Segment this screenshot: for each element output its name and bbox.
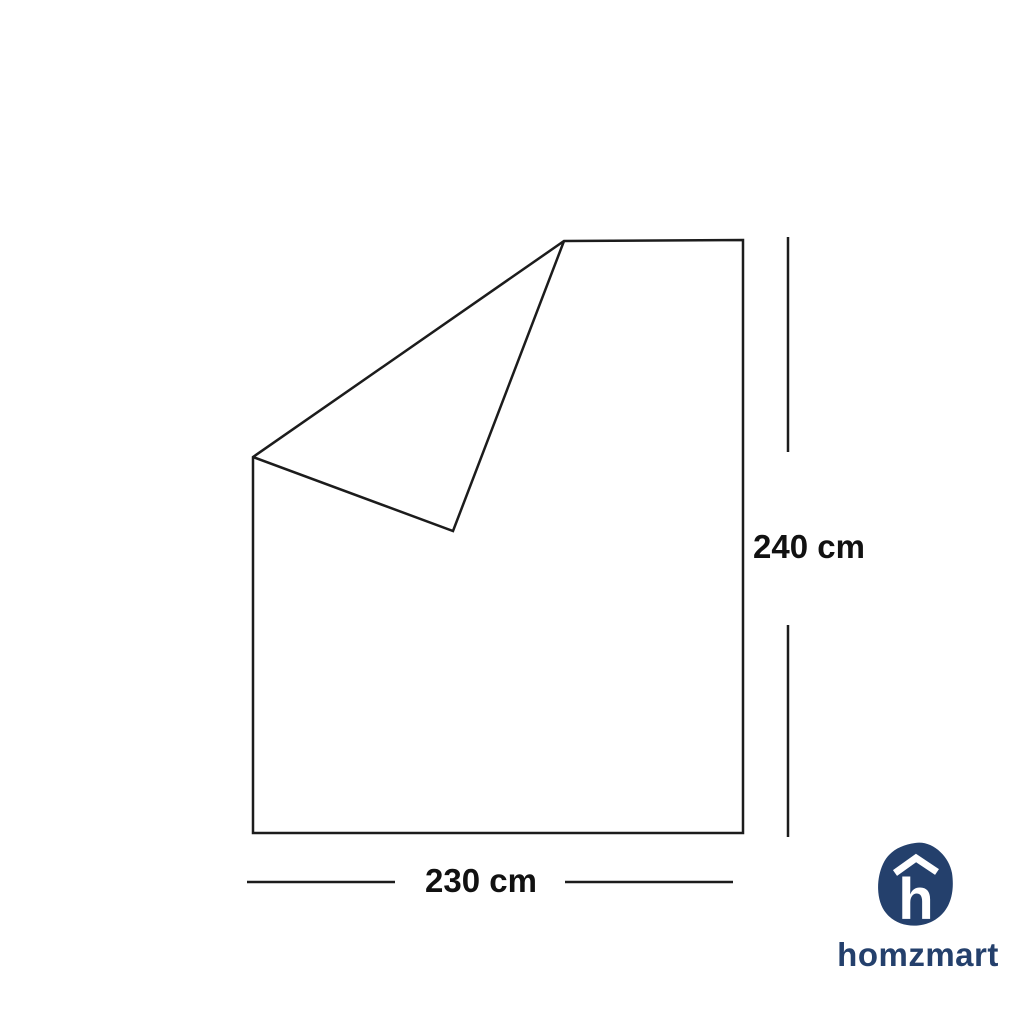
homzmart-logo: h homzmart bbox=[837, 843, 999, 973]
logo-letter: h bbox=[898, 867, 933, 932]
width-label: 230 cm bbox=[425, 862, 537, 899]
height-label: 240 cm bbox=[753, 528, 865, 565]
sheet-outline bbox=[253, 240, 743, 833]
product-dimension-diagram: 240 cm 230 cm h homzmart bbox=[0, 0, 1024, 1024]
homzmart-wordmark: homzmart bbox=[837, 936, 999, 973]
